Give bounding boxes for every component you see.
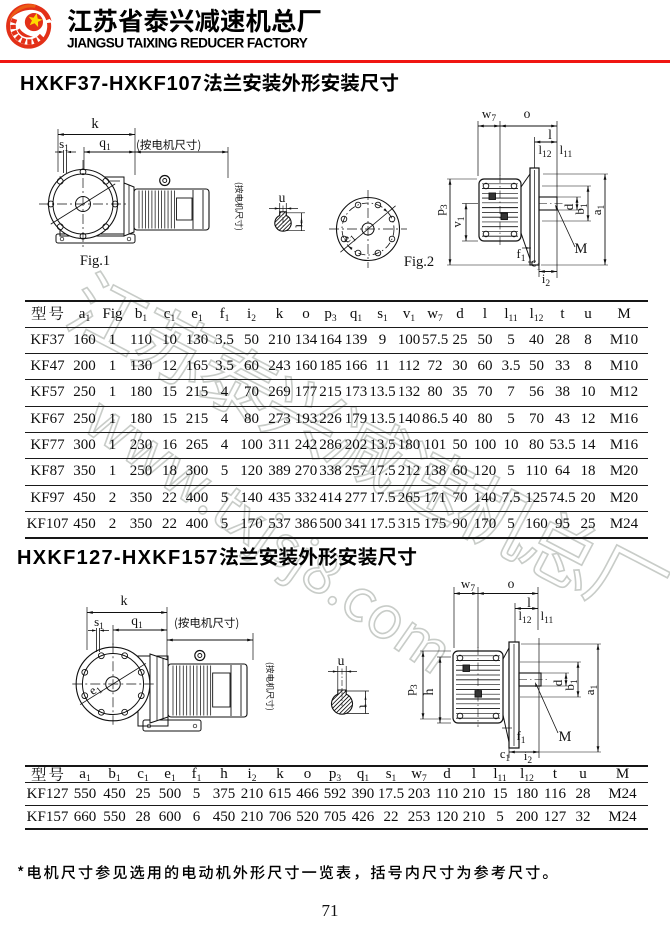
svg-text:M: M	[575, 241, 588, 257]
svg-text:l12: l12	[539, 143, 552, 160]
svg-text:a1: a1	[589, 204, 607, 215]
svg-text:a1: a1	[582, 684, 600, 695]
svg-text:Fig.1: Fig.1	[80, 253, 110, 269]
svg-text:l11: l11	[560, 143, 573, 160]
svg-text:p3: p3	[402, 684, 420, 696]
svg-text:Fig.2: Fig.2	[404, 254, 434, 270]
svg-text:HXKF127-HXKF157: HXKF127-HXKF157	[17, 547, 219, 569]
svg-text:c1: c1	[531, 256, 542, 273]
svg-text:f1: f1	[517, 247, 526, 264]
svg-text:t: t	[357, 705, 372, 709]
svg-text:p3: p3	[432, 204, 450, 216]
svg-text:l11: l11	[541, 609, 554, 626]
svg-text:u: u	[338, 653, 345, 668]
svg-text:i2: i2	[542, 272, 550, 289]
svg-text:k: k	[91, 116, 99, 132]
svg-text:u: u	[279, 190, 286, 205]
svg-text:l12: l12	[519, 609, 532, 626]
svg-text:o: o	[508, 576, 515, 591]
svg-text:l: l	[548, 127, 552, 142]
svg-text:w7: w7	[482, 106, 496, 124]
svg-text:w7: w7	[461, 576, 475, 594]
svg-text:HXKF37-HXKF107: HXKF37-HXKF107	[20, 73, 202, 95]
svg-text:t: t	[293, 224, 308, 228]
svg-text:l: l	[527, 595, 531, 610]
svg-text:q1: q1	[131, 613, 143, 631]
svg-text:M: M	[559, 729, 572, 745]
svg-text:e1: e1	[340, 228, 359, 248]
svg-text:s1: s1	[94, 614, 104, 632]
svg-text:f1: f1	[517, 729, 526, 746]
svg-text:k: k	[121, 594, 128, 609]
svg-text:o: o	[524, 106, 531, 121]
svg-text:q1: q1	[99, 135, 111, 153]
svg-text:v1: v1	[450, 216, 467, 227]
